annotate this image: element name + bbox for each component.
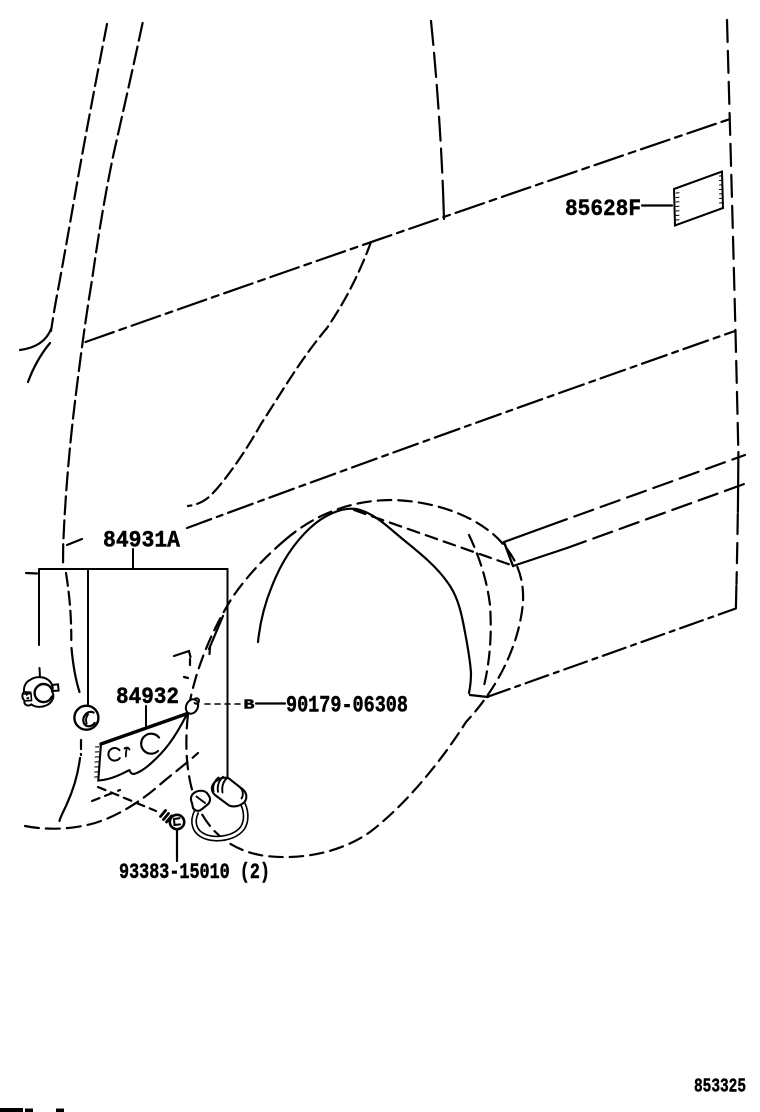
svg-text:84932: 84932 xyxy=(116,684,179,711)
svg-text:84931A: 84931A xyxy=(103,528,181,555)
svg-text:B: B xyxy=(244,699,255,714)
svg-text:85628F: 85628F xyxy=(565,196,641,223)
svg-text:90179-06308: 90179-06308 xyxy=(286,693,408,720)
svg-text:853325: 853325 xyxy=(694,1076,746,1098)
svg-text:93383-15010 (2): 93383-15010 (2) xyxy=(119,859,270,885)
